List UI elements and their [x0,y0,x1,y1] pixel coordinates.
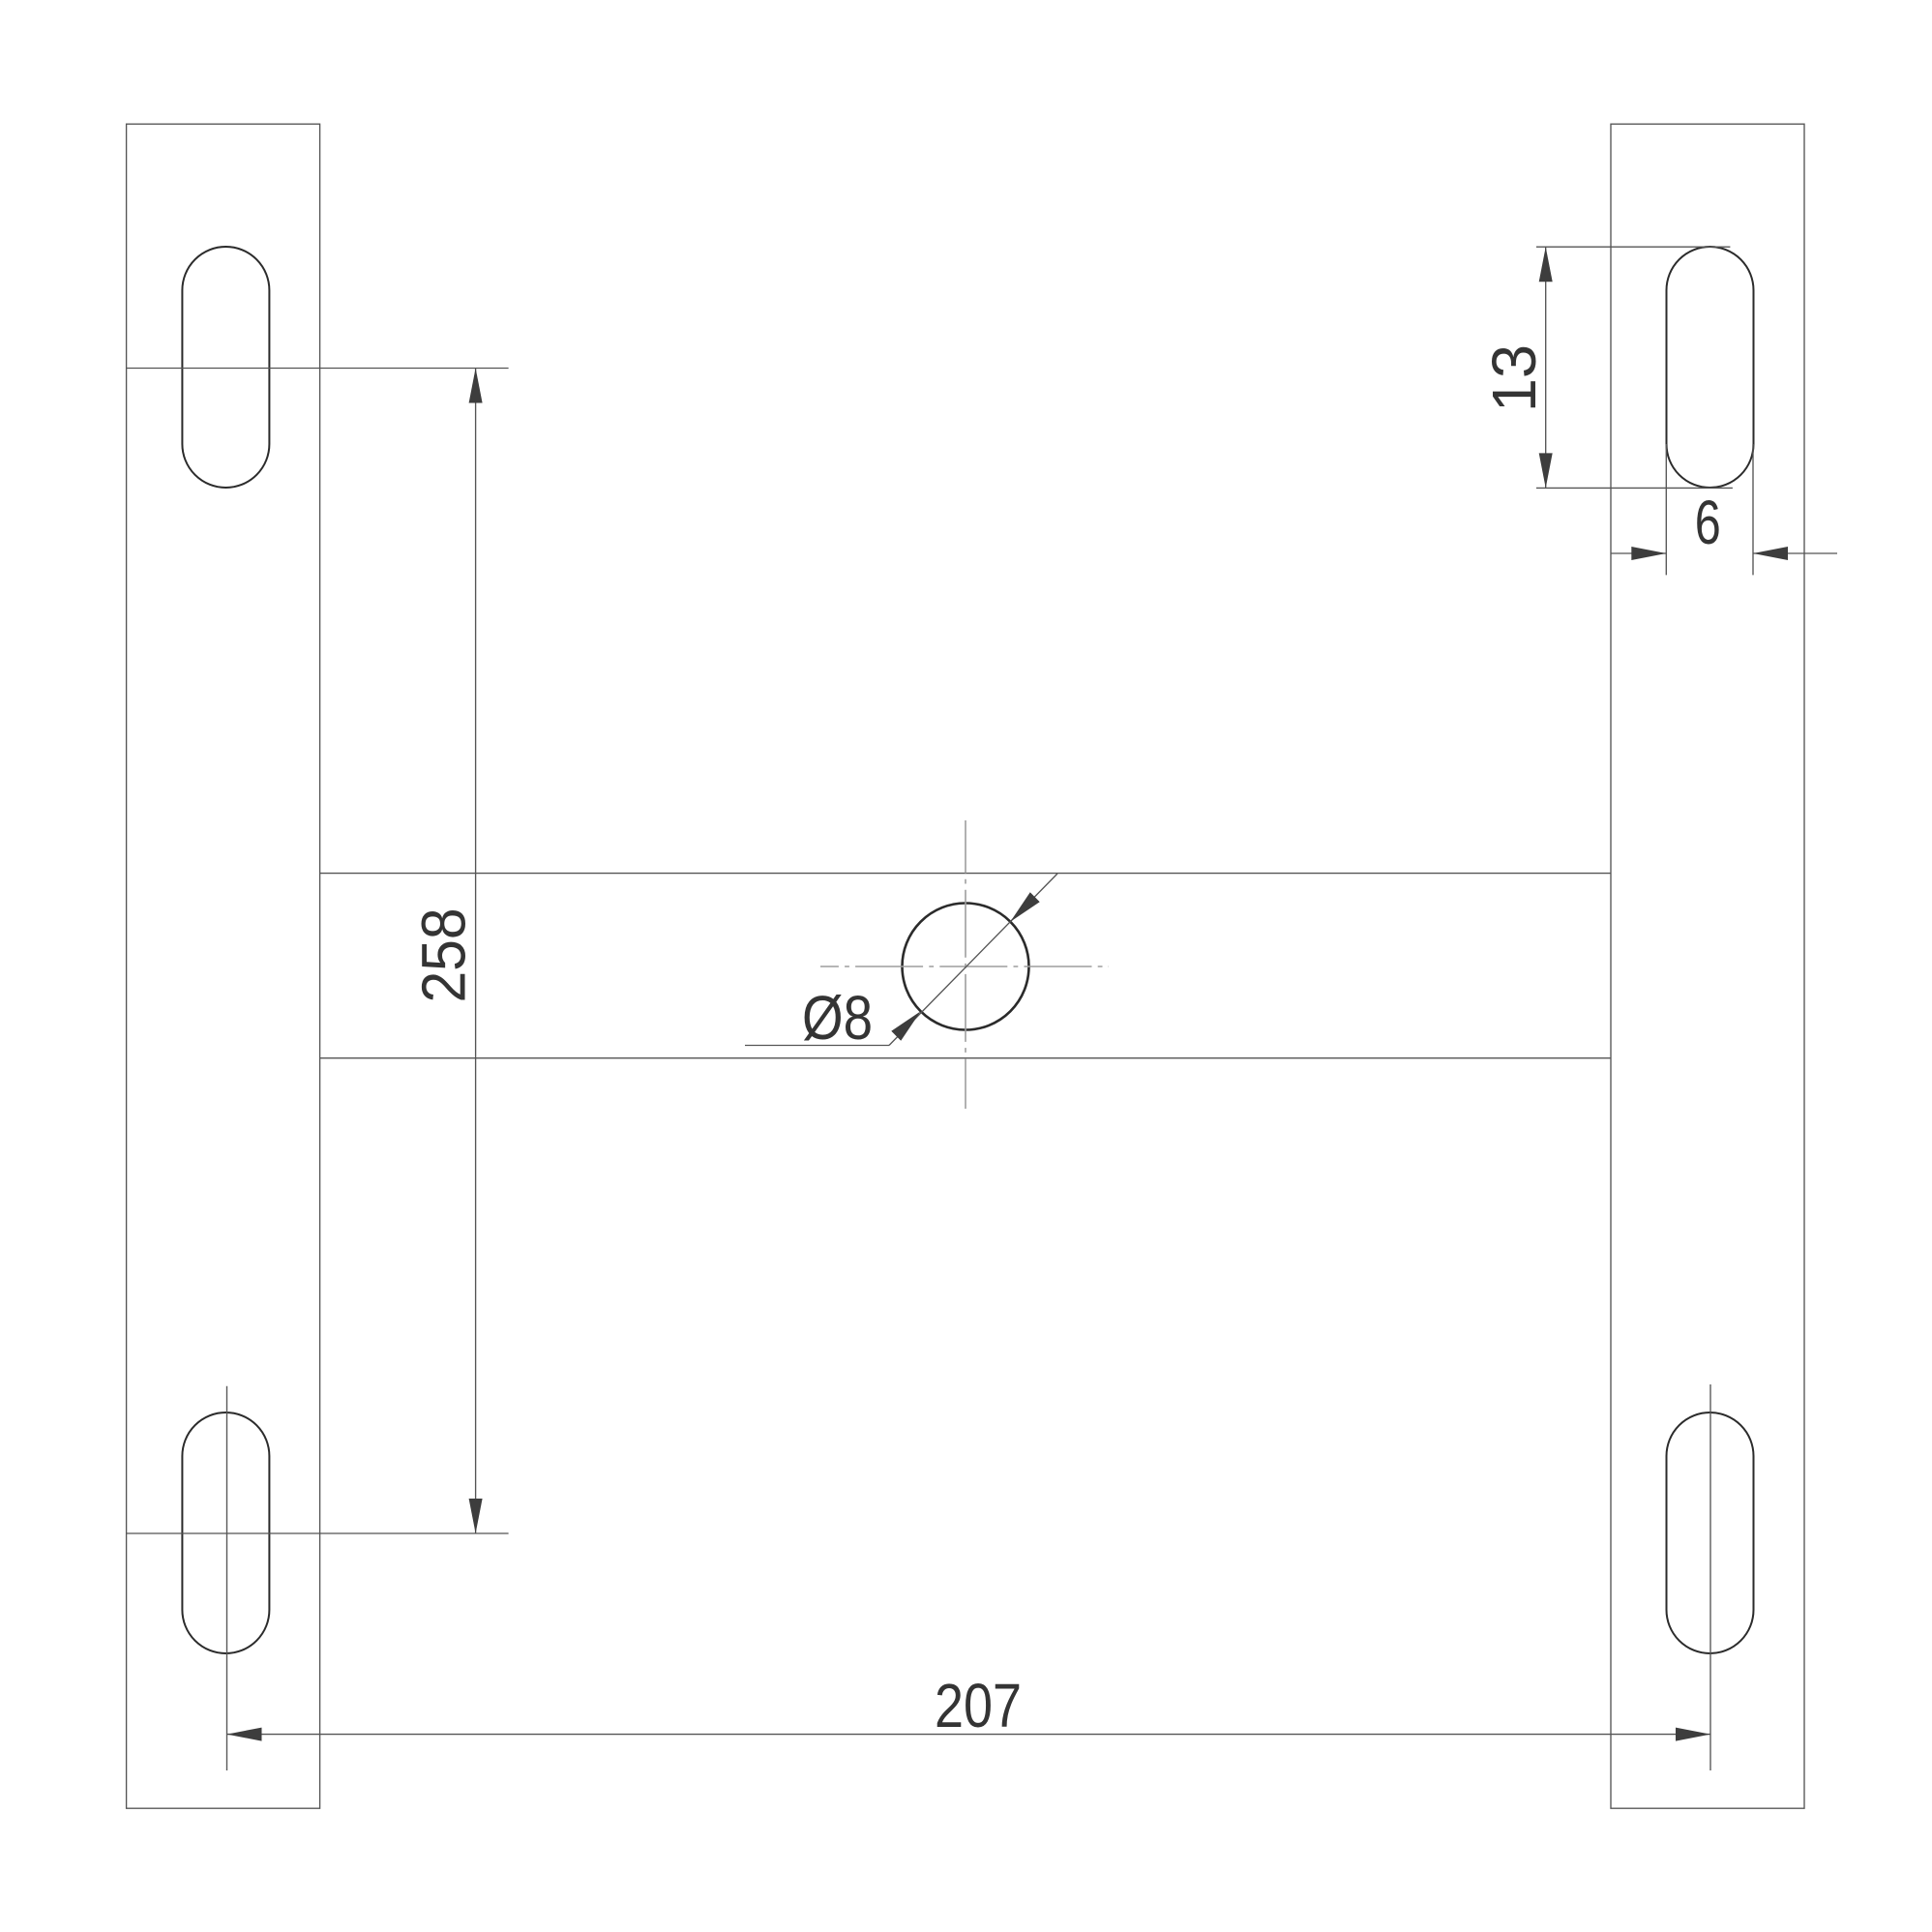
svg-text:13: 13 [1479,344,1549,412]
svg-text:6: 6 [1695,488,1721,557]
svg-text:Ø8: Ø8 [802,983,873,1053]
svg-text:258: 258 [409,908,479,1003]
svg-text:207: 207 [935,1671,1022,1740]
